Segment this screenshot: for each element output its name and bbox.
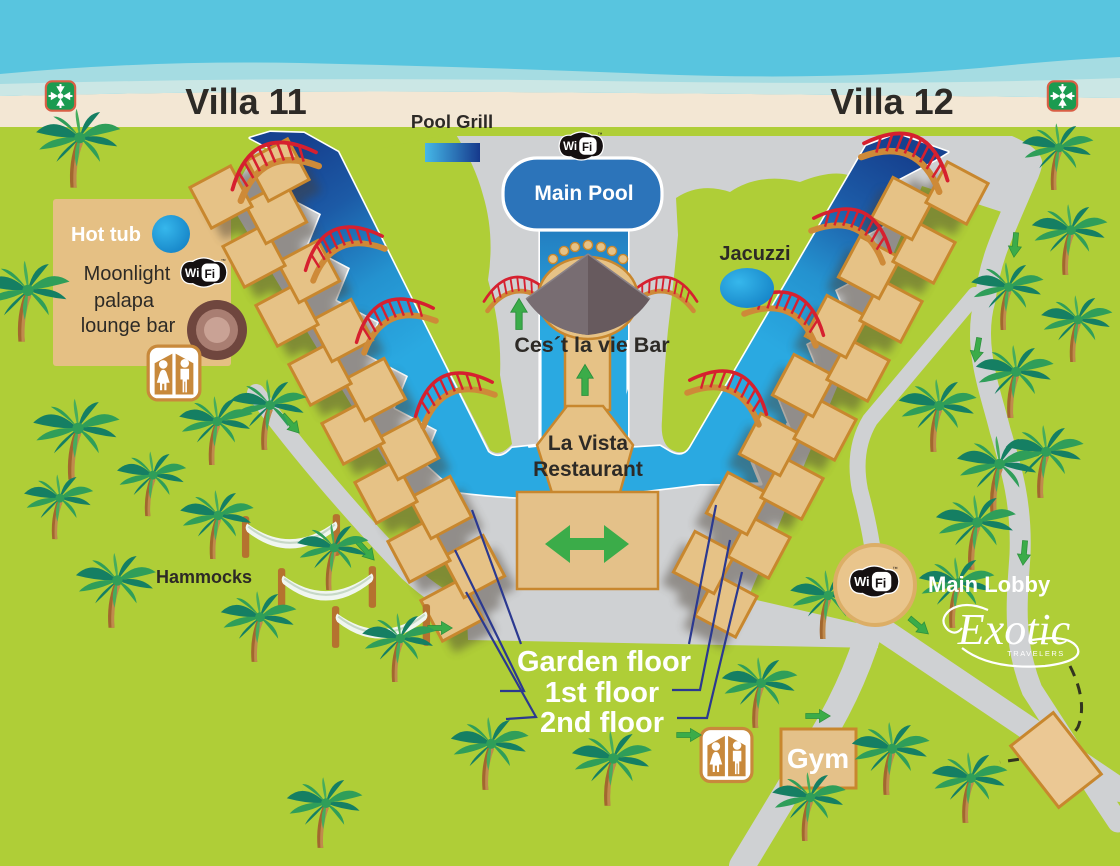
svg-text:1st floor: 1st floor bbox=[545, 677, 659, 709]
svg-text:Villa 12: Villa 12 bbox=[830, 81, 953, 122]
svg-text:Hammocks: Hammocks bbox=[156, 567, 252, 587]
svg-text:Ces´t la vie Bar: Ces´t la vie Bar bbox=[514, 333, 670, 357]
svg-text:Exotic: Exotic bbox=[957, 605, 1071, 654]
svg-text:Hot tub: Hot tub bbox=[71, 224, 141, 246]
svg-text:Main Lobby: Main Lobby bbox=[928, 572, 1051, 597]
svg-text:palapa: palapa bbox=[94, 290, 155, 312]
svg-text:Gym: Gym bbox=[787, 743, 849, 774]
svg-text:La Vista: La Vista bbox=[548, 432, 628, 455]
svg-text:Main Pool: Main Pool bbox=[534, 182, 633, 205]
svg-text:Pool Grill: Pool Grill bbox=[411, 111, 493, 132]
svg-text:Restaurant: Restaurant bbox=[533, 458, 643, 481]
svg-text:Villa 11: Villa 11 bbox=[185, 81, 306, 122]
svg-text:TRAVELERS: TRAVELERS bbox=[1007, 649, 1065, 658]
svg-text:Moonlight: Moonlight bbox=[84, 263, 171, 285]
svg-text:lounge bar: lounge bar bbox=[81, 315, 176, 337]
svg-text:2nd floor: 2nd floor bbox=[540, 707, 664, 739]
svg-text:Jacuzzi: Jacuzzi bbox=[719, 243, 790, 265]
svg-text:Garden floor: Garden floor bbox=[517, 646, 691, 678]
